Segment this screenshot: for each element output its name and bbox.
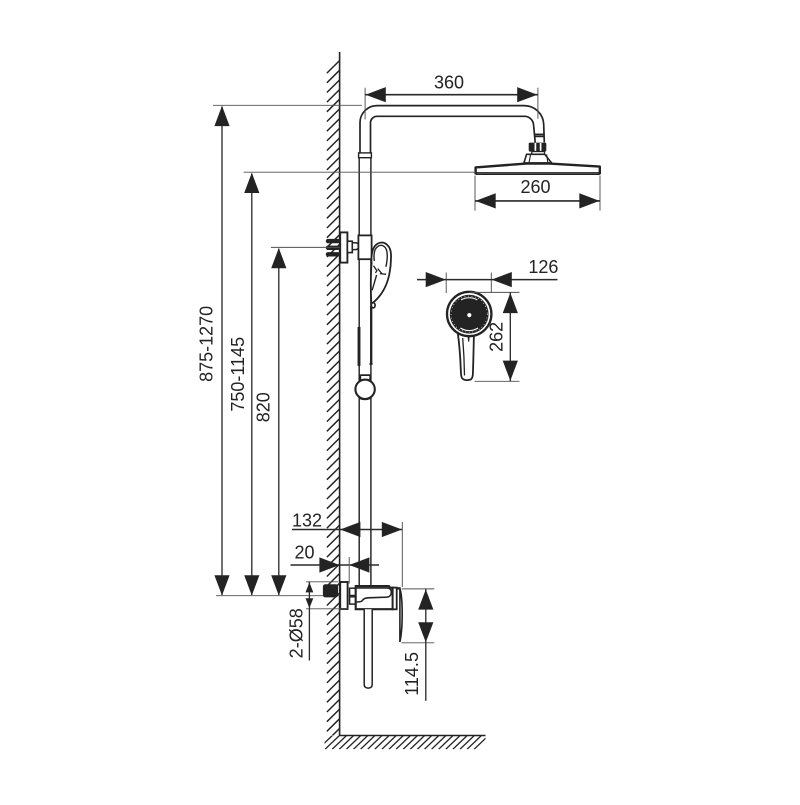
svg-text:750-1145: 750-1145 (228, 337, 248, 412)
svg-text:875-1270: 875-1270 (197, 306, 217, 382)
svg-text:262: 262 (487, 322, 507, 352)
svg-text:20: 20 (294, 542, 314, 562)
svg-text:360: 360 (434, 73, 464, 93)
svg-text:820: 820 (253, 392, 273, 422)
svg-text:114.5: 114.5 (402, 652, 422, 696)
svg-text:132: 132 (292, 510, 322, 530)
svg-text:2-Ø58: 2-Ø58 (286, 608, 306, 658)
svg-text:126: 126 (528, 257, 558, 277)
svg-text:260: 260 (520, 177, 550, 197)
